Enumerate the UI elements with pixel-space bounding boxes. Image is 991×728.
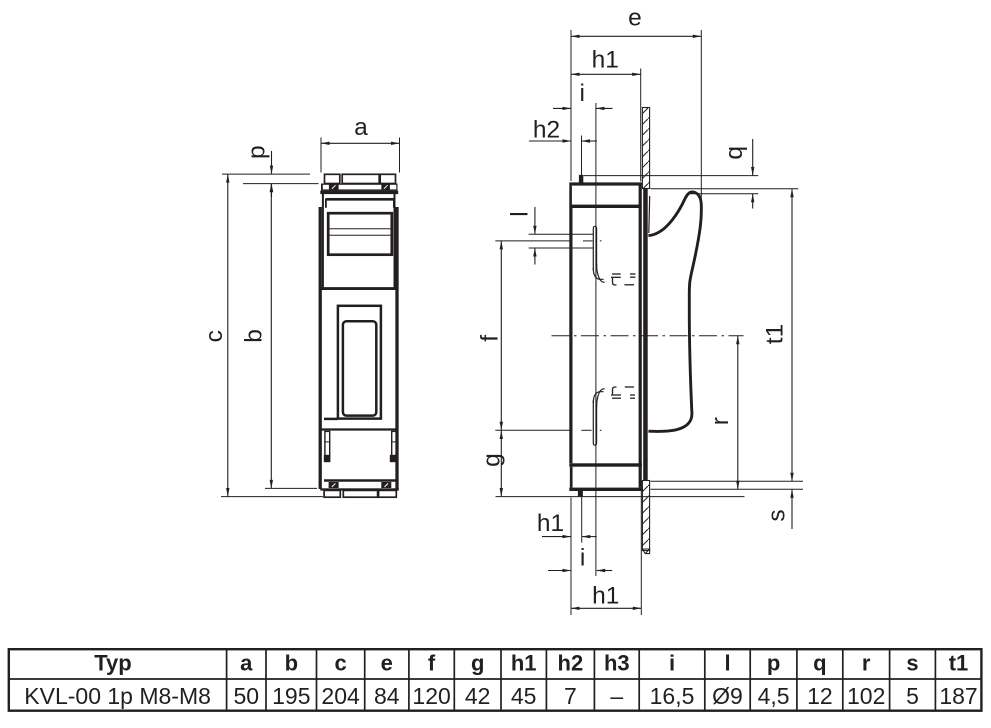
svg-text:i: i <box>579 80 584 107</box>
svg-text:s: s <box>764 509 791 521</box>
svg-text:t1: t1 <box>949 651 969 676</box>
svg-text:7: 7 <box>564 683 577 709</box>
svg-text:p: p <box>244 145 271 159</box>
svg-text:h2: h2 <box>533 116 560 143</box>
svg-text:e: e <box>628 5 642 32</box>
svg-text:f: f <box>477 335 504 342</box>
svg-text:Ø9: Ø9 <box>712 683 743 709</box>
svg-text:45: 45 <box>511 683 537 709</box>
svg-text:84: 84 <box>374 683 400 709</box>
svg-text:l: l <box>724 651 730 676</box>
svg-text:120: 120 <box>412 683 450 709</box>
svg-text:c: c <box>201 330 228 342</box>
svg-text:h3: h3 <box>604 651 630 676</box>
svg-text:h1: h1 <box>592 583 619 610</box>
svg-text:r: r <box>707 417 734 425</box>
svg-text:102: 102 <box>847 683 885 709</box>
svg-text:b: b <box>240 329 267 343</box>
svg-text:i: i <box>669 651 675 676</box>
svg-text:187: 187 <box>939 683 977 709</box>
svg-text:a: a <box>354 114 368 141</box>
svg-text:5: 5 <box>906 683 919 709</box>
svg-text:h2: h2 <box>558 651 584 676</box>
svg-text:b: b <box>285 651 298 676</box>
svg-text:q: q <box>813 651 826 676</box>
svg-text:f: f <box>428 651 436 676</box>
svg-text:4,5: 4,5 <box>758 683 790 709</box>
svg-text:–: – <box>610 683 623 709</box>
svg-text:16,5: 16,5 <box>650 683 695 709</box>
svg-text:KVL-00 1p M8-M8: KVL-00 1p M8-M8 <box>24 683 211 709</box>
svg-text:h1: h1 <box>592 47 619 74</box>
svg-text:c: c <box>334 651 346 676</box>
svg-text:e: e <box>381 651 393 676</box>
svg-text:i: i <box>580 545 585 572</box>
svg-text:42: 42 <box>465 683 491 709</box>
svg-text:p: p <box>767 651 780 676</box>
svg-text:l: l <box>507 211 534 216</box>
svg-text:204: 204 <box>321 683 360 709</box>
svg-text:h1: h1 <box>537 510 564 537</box>
svg-text:r: r <box>862 651 871 676</box>
svg-text:t1: t1 <box>761 324 788 344</box>
svg-text:12: 12 <box>807 683 833 709</box>
svg-text:g: g <box>471 651 484 676</box>
svg-text:50: 50 <box>234 683 260 709</box>
svg-text:s: s <box>906 651 918 676</box>
svg-text:q: q <box>721 146 748 160</box>
svg-text:h1: h1 <box>511 651 537 676</box>
svg-text:195: 195 <box>272 683 310 709</box>
svg-text:a: a <box>240 651 253 676</box>
svg-text:Typ: Typ <box>94 651 131 676</box>
